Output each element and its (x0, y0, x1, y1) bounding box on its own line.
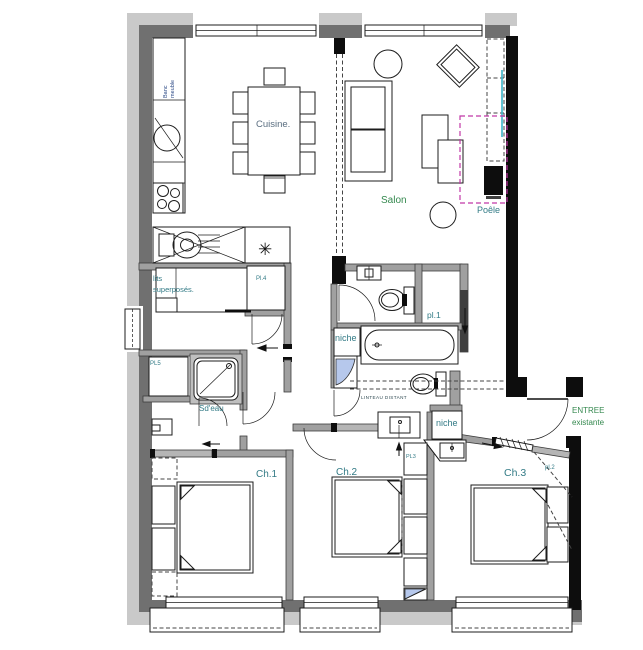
hand-sink-icon (357, 266, 381, 280)
salon (345, 39, 507, 228)
wall-cabinet-dashed (487, 39, 504, 161)
label-sdeau: Sd'eau (199, 404, 224, 413)
nightstand (152, 486, 175, 524)
nightstand (404, 479, 427, 514)
side-table-round (374, 50, 402, 78)
shower (190, 354, 242, 404)
toilet-icon (379, 287, 414, 314)
label-lits-2: superposés. (153, 285, 194, 294)
door-wc (339, 285, 375, 321)
label-meuble: meuble (170, 80, 176, 98)
label-entree-1: ENTREE (572, 406, 604, 415)
armchair (437, 45, 479, 87)
label-salon: Salon (381, 195, 407, 206)
wc-room (357, 266, 414, 314)
label-ch3: Ch.3 (504, 467, 526, 479)
dining-table (233, 68, 315, 193)
bedroom-1 (152, 458, 253, 596)
label-niche-entry: niche (436, 418, 458, 428)
bed-ch2 (332, 477, 402, 557)
bedroom-2 (332, 477, 427, 557)
laundry-counter (153, 227, 245, 263)
nightstand (547, 527, 568, 562)
label-ch2: Ch.2 (336, 467, 358, 478)
door-bunkroom (252, 314, 282, 344)
kitchen-cabinet-run (153, 38, 185, 213)
label-lits-1: lits (153, 274, 162, 283)
entry-door (527, 399, 568, 440)
sofa (345, 81, 392, 181)
label-cuisine: Cuisine. (256, 119, 290, 130)
door-bath (334, 390, 360, 416)
floor-plan: ✳ (0, 0, 643, 650)
label-pl2: pl.2 (545, 465, 555, 471)
bathtub (361, 326, 458, 364)
label-banc: Banc (163, 85, 169, 98)
toilet-2-icon (411, 372, 447, 396)
floor-plan-svg: ✳ (0, 0, 643, 650)
arrow-ch1 (203, 442, 220, 447)
label-pl5: PL5 (150, 361, 161, 367)
label-poele: Poêle (477, 205, 500, 215)
poele-stove (460, 116, 507, 203)
label-niche-bath: niche (335, 333, 357, 343)
arrow-left-corridor (258, 345, 278, 351)
coffee-tables (422, 115, 463, 183)
water-heater-box: ✳ (245, 227, 290, 263)
water-heater-symbol: ✳ (258, 240, 272, 259)
label-linteau: LINTEAU DISTANT (361, 395, 407, 400)
label-pl3: PL3 (406, 454, 416, 460)
nightstand (547, 487, 568, 523)
door-hall (243, 392, 275, 424)
bed-ch3 (471, 485, 548, 564)
kitchen: ✳ (153, 38, 315, 263)
nightstand (404, 517, 427, 554)
label-ch1: Ch.1 (256, 469, 278, 480)
radiator (152, 419, 172, 435)
label-pl4: Pl.4 (256, 276, 267, 282)
nightstand (152, 528, 175, 570)
bed-ch1 (177, 482, 253, 573)
side-table-round-2 (430, 202, 456, 228)
label-pl1: pl.1 (427, 310, 441, 320)
closet-pl4 (247, 266, 285, 310)
door-ch2 (304, 428, 336, 460)
label-entree-2: existante (572, 418, 605, 427)
